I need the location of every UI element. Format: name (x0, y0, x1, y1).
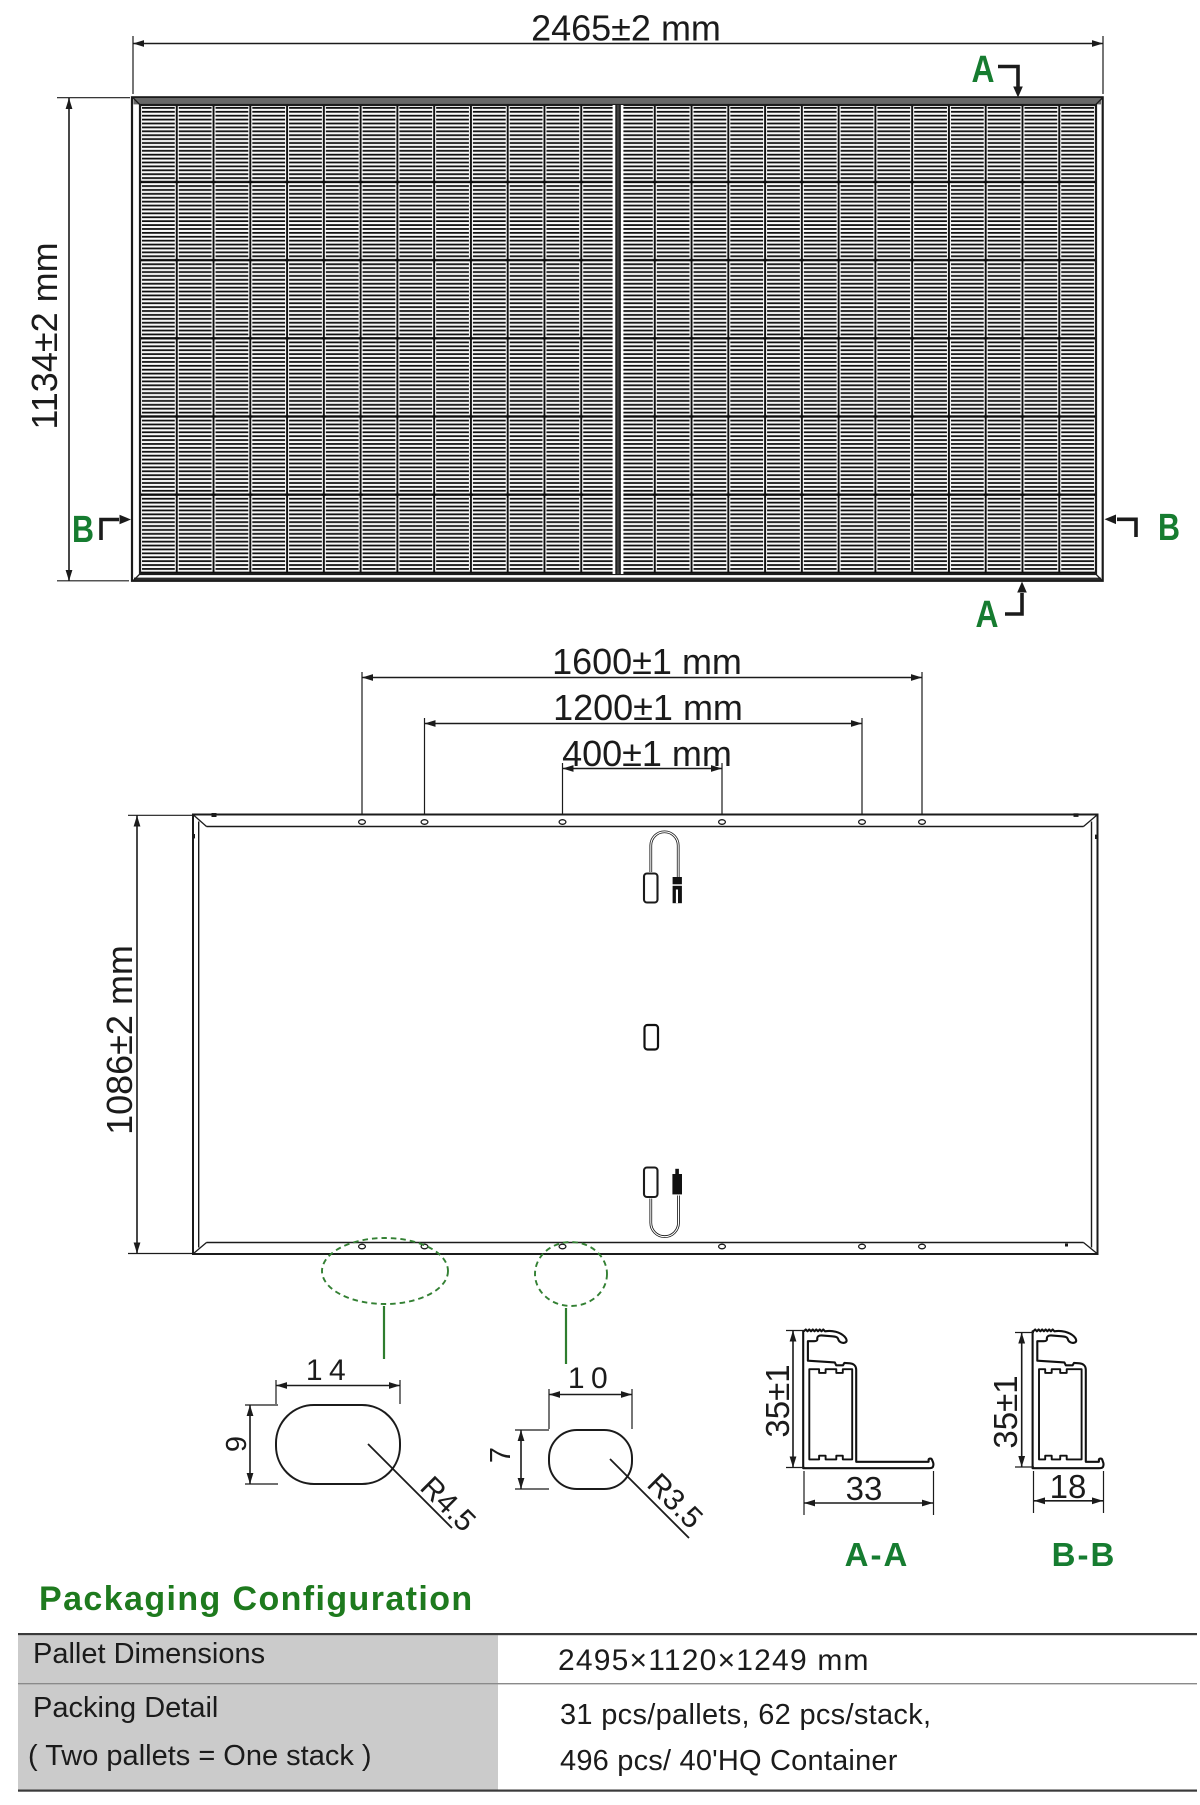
svg-text:496 pcs/ 40'HQ Container: 496 pcs/ 40'HQ Container (560, 1745, 898, 1777)
svg-text:B: B (1158, 507, 1180, 549)
svg-text:B-B: B-B (1052, 1536, 1117, 1573)
svg-text:10: 10 (568, 1362, 614, 1395)
svg-text:( Two pallets = One stack ): ( Two pallets = One stack ) (28, 1740, 372, 1772)
svg-text:A-A: A-A (845, 1536, 910, 1573)
svg-text:400±1 mm: 400±1 mm (562, 733, 732, 774)
svg-text:Packing Detail: Packing Detail (33, 1692, 218, 1724)
svg-text:1134±2 mm: 1134±2 mm (24, 242, 65, 429)
svg-text:33: 33 (846, 1470, 883, 1507)
svg-text:18: 18 (1050, 1468, 1087, 1505)
svg-text:Pallet Dimensions: Pallet Dimensions (33, 1638, 265, 1670)
svg-text:A: A (976, 594, 999, 636)
svg-text:B: B (72, 509, 94, 551)
svg-text:1600±1 mm: 1600±1 mm (552, 641, 742, 682)
svg-text:1086±2 mm: 1086±2 mm (99, 945, 140, 1135)
svg-text:1200±1 mm: 1200±1 mm (553, 687, 743, 728)
svg-text:14: 14 (306, 1354, 352, 1387)
svg-text:2465±2 mm: 2465±2 mm (531, 8, 721, 49)
svg-text:35±1: 35±1 (759, 1364, 796, 1437)
svg-text:35±1: 35±1 (987, 1375, 1024, 1448)
svg-text:R3.5: R3.5 (641, 1467, 709, 1535)
svg-text:2495×1120×1249 mm: 2495×1120×1249 mm (558, 1644, 870, 1677)
svg-text:9: 9 (221, 1436, 253, 1452)
svg-text:7: 7 (485, 1447, 517, 1463)
svg-text:31 pcs/pallets, 62 pcs/stack,: 31 pcs/pallets, 62 pcs/stack, (560, 1699, 931, 1731)
svg-text:R4.5: R4.5 (414, 1470, 482, 1538)
svg-text:A: A (972, 49, 995, 91)
svg-text:Packaging Configuration: Packaging Configuration (39, 1580, 474, 1618)
